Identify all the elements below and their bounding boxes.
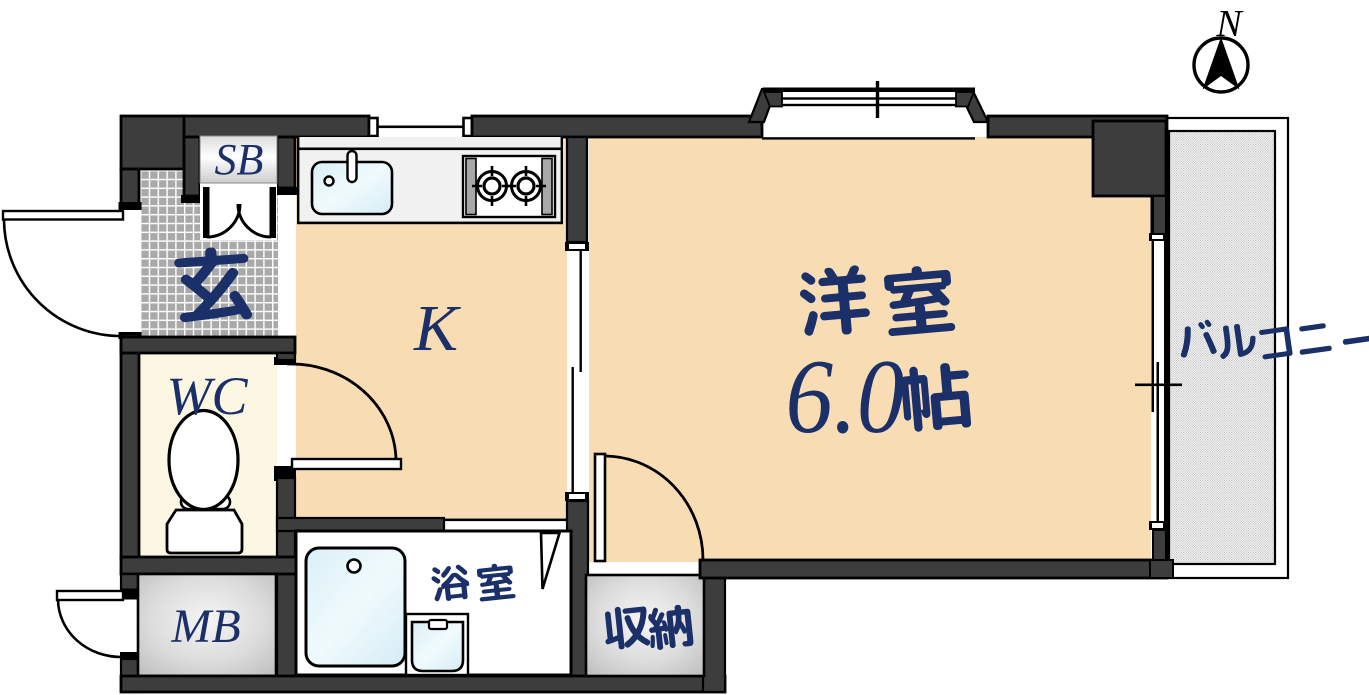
svg-text:MB: MB (170, 600, 240, 653)
svg-text:N: N (1215, 3, 1244, 45)
svg-text:6.0: 6.0 (786, 338, 905, 455)
svg-text:K: K (413, 292, 461, 365)
svg-text:SB: SB (215, 135, 264, 184)
svg-text:WC: WC (167, 366, 249, 426)
